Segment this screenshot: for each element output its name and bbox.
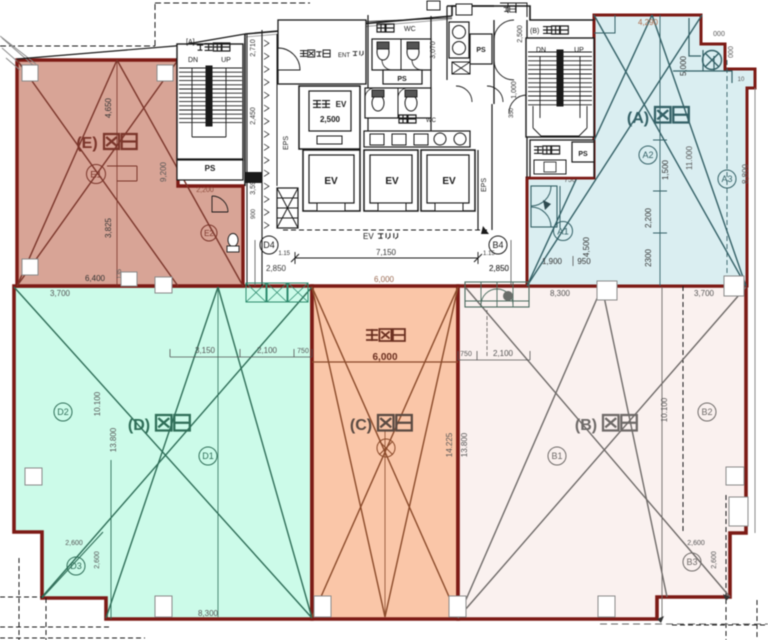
svg-text:2,500: 2,500: [517, 25, 524, 43]
svg-text:E2: E2: [204, 229, 214, 238]
svg-text:DN: DN: [536, 47, 546, 54]
svg-text:PS: PS: [397, 76, 407, 83]
svg-text:4,290: 4,290: [638, 18, 659, 27]
svg-text:EV: EV: [363, 232, 374, 241]
svg-text:950: 950: [577, 257, 591, 266]
svg-text:2,600: 2,600: [687, 540, 705, 547]
svg-text:UP: UP: [574, 47, 584, 54]
svg-text:B1: B1: [551, 451, 562, 461]
svg-text:PS: PS: [476, 47, 486, 54]
svg-text:7,150: 7,150: [376, 248, 397, 257]
svg-text:1,000: 1,000: [511, 81, 518, 99]
svg-text:13.800: 13.800: [109, 427, 118, 452]
svg-text:DN: DN: [188, 57, 198, 64]
svg-text:PS: PS: [578, 151, 588, 158]
svg-text:B3: B3: [686, 557, 697, 567]
svg-text:11.000: 11.000: [685, 146, 694, 170]
svg-text:3,150: 3,150: [195, 346, 216, 355]
svg-text:A1: A1: [557, 226, 569, 237]
svg-text:10: 10: [738, 77, 745, 83]
svg-text:(D): (D): [128, 417, 150, 434]
svg-text:PS: PS: [205, 164, 216, 173]
svg-text:(E): (E): [76, 135, 97, 152]
svg-text:UP: UP: [221, 57, 231, 64]
svg-text:4,500: 4,500: [582, 236, 591, 257]
svg-text:WC: WC: [404, 26, 416, 33]
svg-text:2,500: 2,500: [320, 115, 341, 124]
svg-text:A2: A2: [642, 150, 653, 160]
svg-text:2,850: 2,850: [489, 264, 510, 273]
svg-text:3,700: 3,700: [694, 289, 715, 298]
svg-text:(C): (C): [350, 417, 372, 434]
svg-text:EV: EV: [336, 100, 347, 109]
svg-text:2,850: 2,850: [266, 264, 287, 273]
svg-text:2300: 2300: [644, 249, 653, 267]
svg-text:5,000: 5,000: [679, 55, 688, 76]
svg-text:2,450: 2,450: [250, 107, 257, 125]
svg-text:EPS: EPS: [481, 178, 488, 192]
svg-text:D4: D4: [263, 240, 275, 250]
svg-text:2,600: 2,600: [711, 551, 718, 569]
svg-text:1,900: 1,900: [542, 257, 563, 266]
svg-text:D1: D1: [202, 451, 214, 461]
svg-text:2,200: 2,200: [644, 207, 653, 228]
svg-text:4,650: 4,650: [104, 97, 113, 118]
svg-text:1.15: 1.15: [278, 251, 290, 257]
svg-text:EPS: EPS: [283, 136, 290, 150]
svg-text:6,000: 6,000: [374, 275, 395, 284]
svg-text:D2: D2: [57, 407, 69, 417]
svg-text:(A): (A): [627, 110, 649, 127]
svg-text:D3: D3: [70, 561, 82, 571]
svg-text:EV: EV: [442, 176, 456, 187]
svg-text:750: 750: [297, 348, 309, 355]
svg-text:3,070: 3,070: [430, 41, 437, 59]
svg-text:10.100: 10.100: [660, 397, 669, 422]
svg-text:A3: A3: [721, 174, 732, 184]
svg-text:B4: B4: [492, 240, 503, 250]
svg-text:1,500: 1,500: [661, 159, 670, 180]
svg-text:9,200: 9,200: [159, 161, 168, 182]
svg-text:ENT: ENT: [338, 53, 350, 59]
svg-text:2,600: 2,600: [94, 551, 101, 569]
svg-text:B2: B2: [701, 407, 712, 417]
svg-text:8,300: 8,300: [198, 609, 219, 618]
svg-text:350: 350: [509, 107, 515, 118]
svg-text:EV: EV: [324, 176, 338, 187]
svg-text:750: 750: [460, 351, 472, 358]
svg-text:[A]: [A]: [186, 39, 195, 46]
svg-text:13.800: 13.800: [460, 432, 469, 457]
svg-text:8,300: 8,300: [550, 289, 571, 298]
svg-text:6,400: 6,400: [85, 274, 106, 283]
svg-text:3,700: 3,700: [50, 289, 71, 298]
svg-text:2,100: 2,100: [257, 346, 278, 355]
svg-text:EV: EV: [385, 176, 399, 187]
svg-text:2,710: 2,710: [250, 39, 257, 57]
svg-text:000: 000: [728, 46, 735, 58]
svg-text:8,800: 8,800: [741, 163, 750, 184]
svg-text:WC: WC: [426, 118, 437, 124]
svg-text:6,000: 6,000: [372, 352, 397, 363]
svg-text:2,600: 2,600: [65, 540, 83, 547]
svg-text:1.15: 1.15: [483, 251, 495, 257]
svg-text:14.225: 14.225: [445, 432, 454, 457]
svg-text:E1: E1: [90, 169, 102, 180]
svg-text:(B): (B): [530, 28, 539, 35]
svg-text:(B): (B): [575, 417, 597, 434]
svg-text:2,100: 2,100: [493, 349, 514, 358]
svg-text:2,200: 2,200: [196, 187, 214, 194]
svg-text:3,825: 3,825: [104, 217, 113, 238]
svg-text:000: 000: [713, 31, 725, 38]
svg-text:10.100: 10.100: [93, 391, 102, 416]
svg-text:900: 900: [251, 208, 257, 219]
